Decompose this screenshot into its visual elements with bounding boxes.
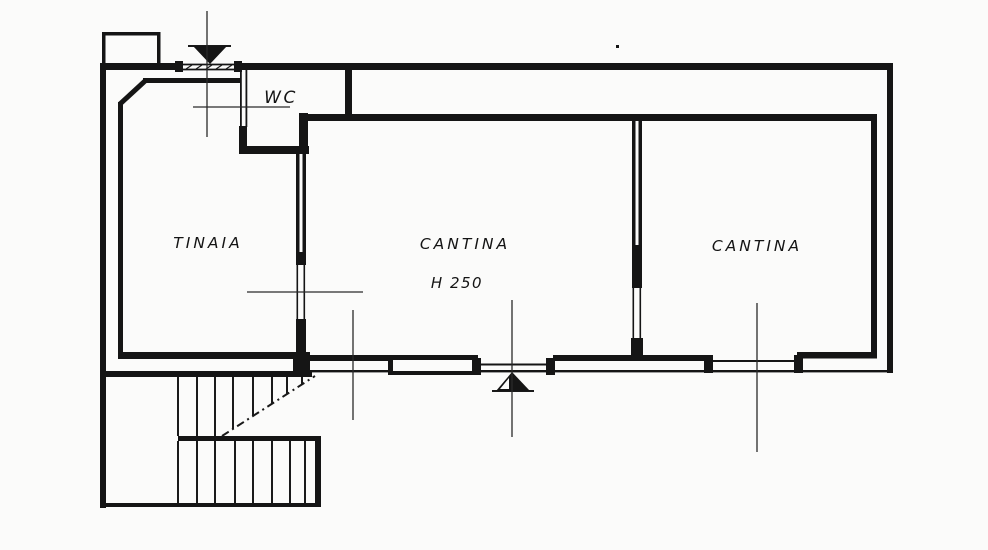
wall-inner-face <box>307 355 390 361</box>
tinaia-bottom-wall <box>118 352 298 359</box>
stair-bottom-wall <box>100 503 321 507</box>
wall-inner-face <box>797 352 877 359</box>
wall-cavity <box>300 154 303 252</box>
room-label-wc: WC <box>264 88 298 108</box>
cantina-right-inner-wall <box>871 118 877 357</box>
staircase <box>100 376 321 507</box>
protrusion-left-edge <box>102 32 106 66</box>
window-jamb-block <box>704 355 713 373</box>
door-jamb-block <box>472 358 481 375</box>
tinaia-walls <box>100 78 312 377</box>
floor-plan-drawing: WC TINAIA CANTINA H 250 CANTINA <box>0 0 988 550</box>
wall-inner-face <box>553 355 712 361</box>
room-label-tinaia: TINAIA <box>173 234 242 252</box>
cantina-partition-wall <box>631 114 643 359</box>
tinaia-chamfer-wall <box>120 81 145 104</box>
stair-break-line <box>222 376 315 436</box>
door-opening-line <box>481 364 548 366</box>
wall-segment <box>296 319 306 355</box>
door-opening-line <box>633 288 635 339</box>
door-jamb-block <box>175 61 183 72</box>
wall-right-outer <box>887 63 893 373</box>
threshold-hatch-tick <box>186 65 192 69</box>
wall-left-outer <box>100 63 106 508</box>
wc-door-line <box>240 70 242 127</box>
stair-right-wall <box>315 438 321 506</box>
tinaia-cantina-wall <box>296 148 306 355</box>
wc-walls <box>239 70 352 154</box>
stair-mid-rail <box>178 436 321 441</box>
threshold-hatch-tick <box>216 65 222 69</box>
wc-right-wall <box>345 70 352 119</box>
room-label-cantina-right: CANTINA <box>712 237 802 255</box>
rooms-top-wall <box>300 114 877 121</box>
tinaia-left-inner-wall <box>118 102 123 355</box>
room-height-note: H 250 <box>431 274 483 292</box>
wall-top-left-segment <box>100 63 180 70</box>
window-glass <box>393 360 473 371</box>
protrusion-top-edge <box>102 32 160 36</box>
wc-left-wall <box>239 126 247 148</box>
door-opening-line <box>640 288 642 339</box>
room-label-cantina-central: CANTINA <box>420 235 510 253</box>
top-entrance-door <box>175 46 242 72</box>
wall-cavity <box>636 121 639 245</box>
section-triangle-down-icon <box>193 46 227 64</box>
tinaia-top-wall <box>143 78 241 83</box>
threshold-hatch-tick <box>196 65 202 69</box>
scan-speckle <box>616 45 619 48</box>
axis-lines <box>193 11 757 452</box>
stair-top-wall <box>100 371 312 377</box>
window-line <box>713 360 795 362</box>
wall-top-main-segment <box>237 63 893 70</box>
wc-door-line <box>246 70 248 127</box>
floor-plan-scan: WC TINAIA CANTINA H 250 CANTINA <box>0 0 988 550</box>
protrusion-right-edge <box>157 32 161 66</box>
threshold-hatch-tick <box>226 65 232 69</box>
